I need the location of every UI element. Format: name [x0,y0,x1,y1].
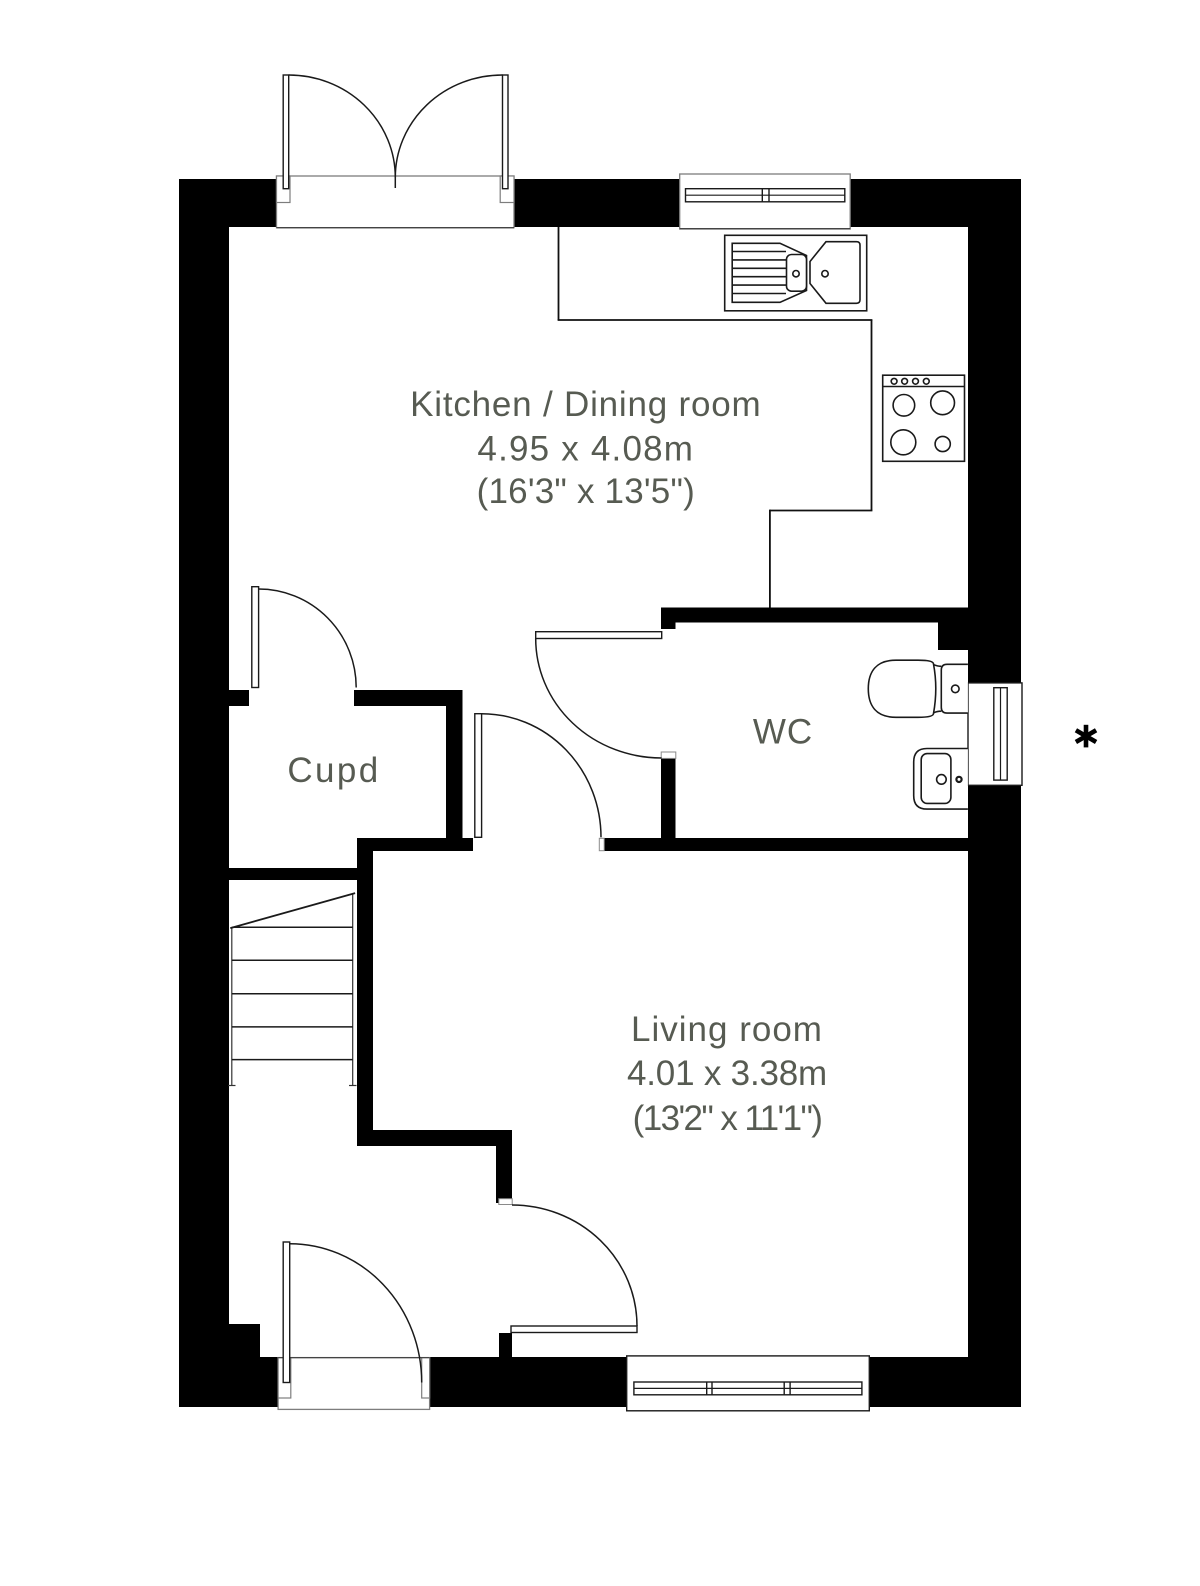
svg-text:4.95 x 4.08m: 4.95 x 4.08m [477,430,694,469]
svg-text:4.01 x 3.38m: 4.01 x 3.38m [627,1054,827,1093]
svg-text:Cupd: Cupd [287,751,380,790]
svg-text:(13'2" x 11'1"): (13'2" x 11'1") [633,1099,822,1138]
svg-text:Living room: Living room [631,1010,823,1049]
svg-text:(16'3" x 13'5"): (16'3" x 13'5") [477,472,695,511]
svg-text:Kitchen / Dining room: Kitchen / Dining room [410,385,761,424]
svg-text:WC: WC [753,713,813,752]
